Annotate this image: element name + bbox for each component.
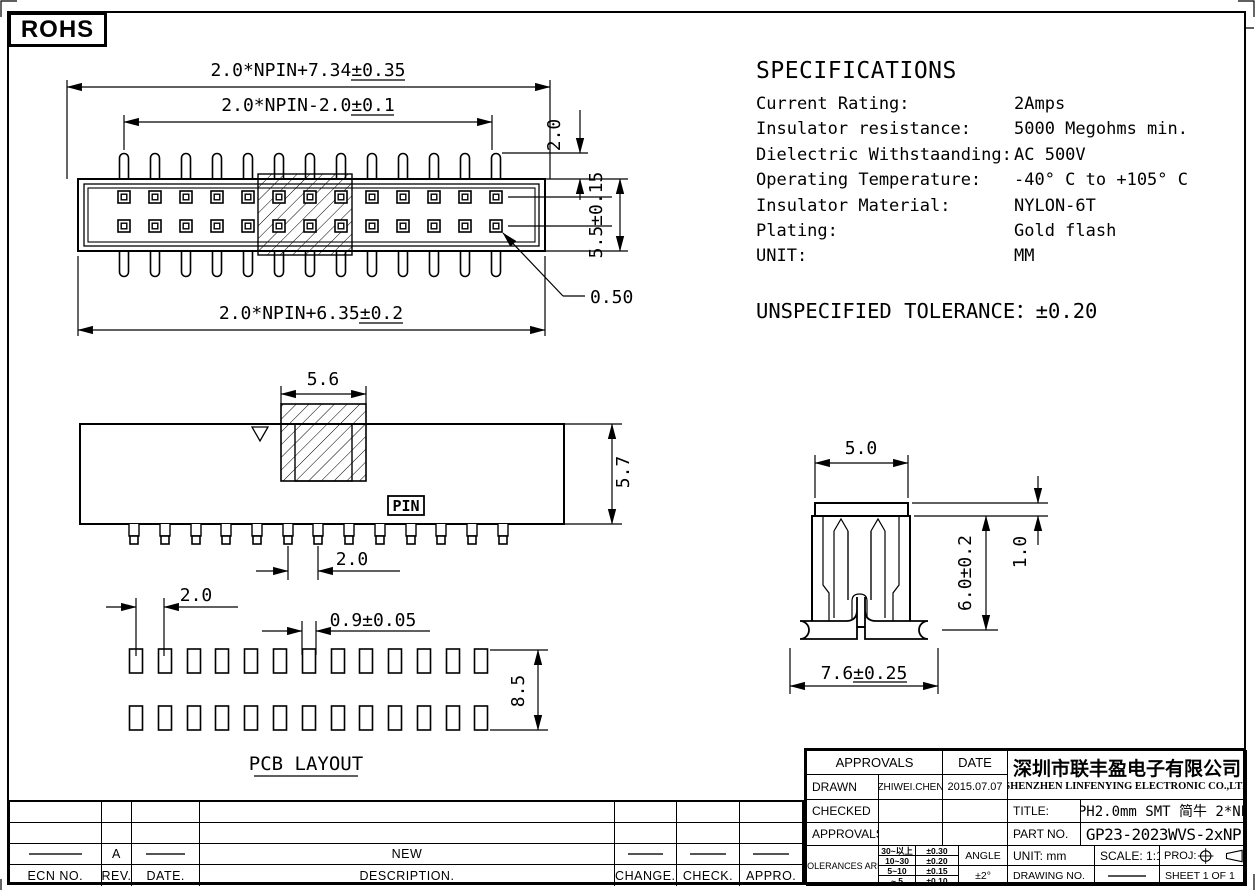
dim-side-pitch: 2.0: [256, 546, 400, 580]
scale-cell: SCALE: 1:1: [1094, 845, 1160, 866]
rev-cell: [102, 823, 133, 844]
pin-label: PIN: [392, 497, 419, 515]
drawn-name: ZHIWEI.CHEN: [878, 782, 943, 793]
check-cell: [677, 802, 741, 823]
revision-row: [10, 802, 802, 823]
dim-body-height-label: 5.5±0.15: [586, 172, 607, 259]
appro-header: APPRO.: [740, 865, 802, 886]
approvals-label-cell: APPROVALS: [806, 822, 879, 846]
header-label: REV.: [102, 869, 132, 883]
ecn-cell: [10, 802, 102, 823]
pad-size-label: 0.50: [590, 287, 633, 308]
header-label: CHECK.: [683, 869, 733, 883]
title-block: APPROVALS DATE DRAWN ZHIWEI.CHEN 2015.07…: [804, 748, 1245, 884]
scale-label: SCALE: 1:1: [1100, 849, 1160, 863]
spec-label: Insulator resistance:: [756, 117, 1014, 142]
date-cell: [132, 823, 200, 844]
spec-row: Dielectric Withstaanding:AC 500V: [756, 143, 1238, 168]
header-label: APPRO.: [746, 869, 796, 883]
pin-label-box: PIN: [388, 496, 424, 515]
change-cell: [615, 823, 677, 844]
tolerances-label: TOLERANCES ARE: [806, 861, 879, 871]
description-cell: NEW: [200, 844, 615, 865]
date-cell: [132, 844, 200, 865]
revision-header-row: ECN NO. REV. DATE. DESCRIPTION. CHANGE. …: [10, 865, 802, 886]
dim-tab-width-label: 5.6: [307, 369, 340, 390]
ecn-cell: [10, 844, 102, 865]
end-view-body: [812, 516, 910, 627]
check-header: CHECK.: [677, 865, 741, 886]
drawn-name-cell: ZHIWEI.CHEN: [878, 774, 943, 800]
spec-row: Operating Temperature:-40° C to +105° C: [756, 168, 1238, 193]
change-cell: [615, 802, 677, 823]
dim-side-height-label: 5.7: [613, 456, 634, 489]
engineering-drawing-page: 2.0*NPIN+7.34±0.35 2.0*NPIN-2.0±0.1 2.0*…: [0, 0, 1255, 891]
change-cell: [615, 844, 677, 865]
dim-side-height: 5.7: [564, 424, 634, 524]
third-angle-projection-icon: [1197, 847, 1246, 865]
drawing-no-value-cell: [1094, 865, 1160, 886]
company-name-cn: 深圳市联丰盈电子有限公司: [1013, 759, 1241, 781]
header-label: DESCRIPTION.: [360, 869, 455, 883]
drawing-no-cell: DRAWING NO.: [1007, 865, 1095, 886]
tol-value-cell: ±0.10: [915, 875, 959, 886]
tol-value: ±0.30: [926, 846, 947, 856]
pcb-layout-title: PCB LAYOUT: [249, 753, 363, 775]
part-no-label: PART NO.: [1013, 827, 1068, 841]
rohs-text: ROHS: [21, 16, 94, 44]
rev-cell: A: [102, 844, 133, 865]
dash: [690, 853, 726, 855]
dim-end-body-height: 6.0±0.2: [942, 516, 998, 630]
dash: [1108, 875, 1145, 877]
tol-value: ±0.15: [926, 866, 947, 876]
dim-pcb-pad-width-label: 0.9±0.05: [330, 610, 417, 631]
header-label: DATE.: [147, 869, 185, 883]
date-cell: [132, 802, 200, 823]
dim-end-total-width-label: 7.6±0.25: [821, 663, 908, 684]
spec-label: Plating:: [756, 219, 1014, 244]
dim-side-pitch-label: 2.0: [336, 549, 369, 570]
unit-cell: UNIT: mm: [1007, 845, 1095, 866]
dim-body-width-label: 2.0*NPIN+6.35±0.2: [219, 303, 403, 324]
side-view: PIN 5.6 5.7 2.0: [80, 369, 634, 580]
ecn-cell: [10, 823, 102, 844]
title-value: PH2.0mm SMT 简牛 2*NP: [1080, 801, 1247, 821]
check-cell: [677, 844, 741, 865]
angle-label-cell: ANGLE: [958, 845, 1008, 866]
dash: [29, 853, 82, 855]
rev-cell: [102, 802, 133, 823]
dim-end-top-width-label: 5.0: [845, 438, 878, 459]
dim-end-total-width: 7.6±0.25: [790, 648, 938, 694]
checked-label: CHECKED: [812, 804, 871, 818]
revision-row: A NEW: [10, 844, 802, 865]
company-name-en: SHENZHEN LINFENYING ELECTRONIC CO.,LTD: [1007, 781, 1247, 792]
check-cell: [677, 823, 741, 844]
drawing-no-label: DRAWING NO.: [1013, 870, 1085, 882]
tol-range: 5~10: [887, 866, 906, 876]
checked-label-cell: CHECKED: [806, 799, 879, 823]
angle-label: ANGLE: [965, 850, 1001, 862]
tol-range: ~ 5: [891, 876, 903, 886]
spec-value: 5000 Megohms min.: [1014, 119, 1188, 139]
appro-cell: [740, 823, 802, 844]
appro-cell: [740, 802, 802, 823]
projection-label: PROJ:: [1164, 850, 1196, 862]
rohs-logo: ROHS: [8, 12, 107, 47]
title-label: TITLE:: [1013, 804, 1049, 818]
spec-label: Insulator Material:: [756, 194, 1014, 219]
spec-row: UNIT:MM: [756, 244, 1238, 269]
part-no-label-cell: PART NO.: [1007, 822, 1081, 846]
dim-pin-protrusion-label: 2.0: [544, 119, 565, 152]
description-cell: [200, 823, 615, 844]
title-label-cell: TITLE:: [1007, 799, 1081, 823]
dim-pin-span-label: 2.0*NPIN-2.0±0.1: [221, 95, 394, 116]
dim-end-top-width: 5.0: [815, 438, 908, 498]
tolerances-label-cell: TOLERANCES ARE: [806, 845, 879, 886]
description-value: NEW: [392, 847, 423, 861]
unit-label: UNIT: mm: [1013, 849, 1066, 863]
spec-value: MM: [1014, 246, 1034, 266]
tol-value: ±0.10: [926, 876, 947, 886]
side-view-feet: [129, 524, 508, 544]
drawn-label-cell: DRAWN: [806, 774, 879, 800]
spec-label: Dielectric Withstaanding:: [756, 143, 1014, 168]
company-cell: 深圳市联丰盈电子有限公司 SHENZHEN LINFENYING ELECTRO…: [1007, 750, 1247, 800]
angle-tol-cell: ±2°: [958, 865, 1008, 886]
dim-total-width-label: 2.0*NPIN+7.34±0.35: [210, 60, 405, 81]
header-label: ECN NO.: [27, 869, 83, 883]
approvals-header-cell: APPROVALS: [806, 750, 943, 775]
tol-range: 10~30: [885, 856, 909, 866]
pcb-pads-top-row: [130, 649, 488, 673]
date-header: DATE: [958, 755, 992, 770]
specifications-block: SPECIFICATIONS Current Rating:2Amps Insu…: [756, 58, 1238, 324]
approvals-label: APPROVALS: [812, 827, 879, 841]
angle-tol: ±2°: [975, 870, 991, 882]
rev-value: A: [112, 847, 121, 861]
spec-label: Current Rating:: [756, 92, 1014, 117]
spec-value: Gold flash: [1014, 221, 1116, 241]
top-view-hatch-block: [258, 174, 352, 255]
sheet-cell: SHEET 1 OF 1: [1159, 865, 1247, 886]
dim-pin-span: 2.0*NPIN-2.0±0.1: [124, 95, 492, 150]
spec-value: -40° C to +105° C: [1014, 170, 1188, 190]
end-view: 5.0 1.0 6.0±0.2 7.6±0.25: [790, 438, 1048, 694]
unspecified-tolerance: UNSPECIFIED TOLERANCE：±0.20: [756, 294, 1238, 324]
spec-value: AC 500V: [1014, 145, 1086, 165]
spec-label: Operating Temperature:: [756, 168, 1014, 193]
date-header-cell: DATE: [942, 750, 1008, 775]
part-no-value: GP23-2023WVS-2xNP: [1086, 825, 1241, 844]
sheet-label: SHEET 1 OF 1: [1165, 870, 1235, 882]
approvals-header: APPROVALS: [836, 755, 914, 770]
dim-pcb-pitch: 2.0: [106, 585, 238, 656]
change-header: CHANGE.: [615, 865, 677, 886]
rev-header: REV.: [102, 865, 133, 886]
approvals-name-cell: [878, 822, 943, 846]
dim-cap-height: 1.0: [912, 476, 1048, 568]
dim-end-body-height-label: 6.0±0.2: [955, 535, 976, 611]
projection-cell: PROJ:: [1159, 845, 1247, 866]
revision-row: [10, 823, 802, 844]
drawn-label: DRAWN: [812, 780, 857, 794]
header-label: CHANGE.: [615, 869, 675, 883]
top-view: 2.0*NPIN+7.34±0.35 2.0*NPIN-2.0±0.1 2.0*…: [67, 60, 633, 336]
date-header: DATE.: [132, 865, 200, 886]
appro-cell: [740, 844, 802, 865]
dim-tab-width: 5.6: [281, 369, 366, 404]
dim-pcb-row-span-label: 8.5: [508, 675, 529, 708]
spec-row: Insulator Material:NYLON-6T: [756, 194, 1238, 219]
ecn-header: ECN NO.: [10, 865, 102, 886]
description-cell: [200, 802, 615, 823]
revision-table: A NEW ECN NO. REV. DATE. DESCRIPTION. CH…: [8, 800, 804, 884]
tol-range-cell: ~ 5: [878, 875, 916, 886]
spec-value: 2Amps: [1014, 94, 1065, 114]
title-value-cell: PH2.0mm SMT 简牛 2*NP: [1080, 799, 1247, 823]
tol-value: ±0.20: [926, 856, 947, 866]
drawn-date-cell: 2015.07.07: [942, 774, 1008, 800]
drawn-date: 2015.07.07: [947, 781, 1002, 793]
spec-row: Plating:Gold flash: [756, 219, 1238, 244]
part-no-value-cell: GP23-2023WVS-2xNP: [1080, 822, 1247, 846]
spec-row: Current Rating:2Amps: [756, 92, 1238, 117]
approvals-date-cell: [942, 822, 1008, 846]
end-view-cap: [815, 503, 908, 516]
spec-value: NYLON-6T: [1014, 196, 1096, 216]
dim-cap-height-label: 1.0: [1010, 536, 1031, 569]
dim-pcb-pitch-label: 2.0: [180, 585, 213, 606]
pcb-pads-bottom-row: [130, 706, 488, 730]
description-header: DESCRIPTION.: [200, 865, 615, 886]
dash: [628, 853, 663, 855]
pcb-layout: 2.0 0.9±0.05 8.5 PCB LAYOUT: [106, 585, 548, 776]
checked-date-cell: [942, 799, 1008, 823]
specifications-title: SPECIFICATIONS: [756, 58, 1238, 84]
checked-name-cell: [878, 799, 943, 823]
spec-label: UNIT:: [756, 244, 1014, 269]
dash: [146, 853, 185, 855]
dim-pcb-row-span: 8.5: [490, 650, 548, 730]
spec-row: Insulator resistance:5000 Megohms min.: [756, 117, 1238, 142]
dash: [753, 853, 789, 855]
side-view-hatch-block: [281, 404, 366, 481]
